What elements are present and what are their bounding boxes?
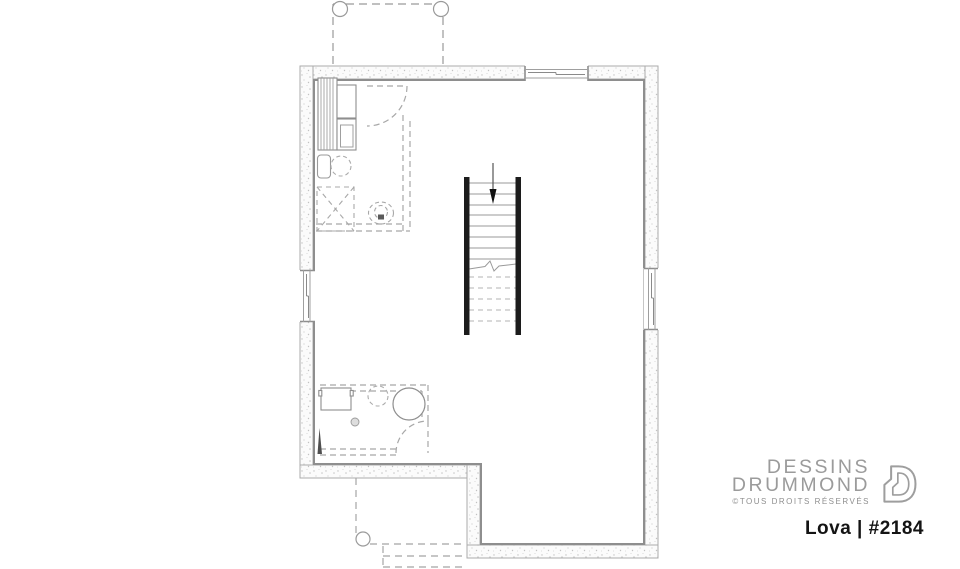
logo-rights-text: ©TOUS DROITS RÉSERVÉS (732, 498, 870, 506)
bathroom-door-swing (367, 86, 407, 126)
porch-post-right (434, 2, 449, 17)
staircase (464, 163, 521, 335)
designer-logo: DESSINS DRUMMOND ©TOUS DROITS RÉSERVÉS (732, 458, 918, 509)
washer (319, 388, 353, 410)
left-wall-window (300, 270, 316, 322)
mechanical-shelving (318, 78, 337, 150)
toilet-dashed (369, 202, 394, 224)
floor-drain (351, 418, 359, 426)
rear-post (356, 532, 370, 546)
wall-top (300, 66, 658, 79)
shower-dashed (317, 187, 354, 231)
rear-steps-dashed (356, 478, 466, 567)
drummond-d-logo-icon (876, 459, 918, 509)
laundry-tub (318, 155, 331, 178)
designer-logo-text: DESSINS DRUMMOND ©TOUS DROITS RÉSERVÉS (732, 458, 870, 506)
stair-wall-right (516, 177, 522, 335)
floor-plan-screenshot: DESSINS DRUMMOND ©TOUS DROITS RÉSERVÉS L… (0, 0, 960, 569)
future-appliance-circle (368, 386, 388, 406)
toilet-flange (378, 215, 384, 220)
water-heater (393, 388, 425, 420)
equipment-box-inner (341, 125, 354, 147)
logo-line-2: DRUMMOND (732, 476, 870, 494)
stair-break-line (469, 261, 516, 271)
plan-name-number: Lova | #2184 (805, 518, 924, 540)
porch-post-left (333, 2, 348, 17)
stair-down-arrow-icon (490, 189, 497, 204)
top-porch-dashed (333, 4, 443, 66)
top-wall-window (525, 65, 588, 81)
furnace-box (337, 85, 356, 118)
wall-bottom-main (300, 465, 480, 478)
laundry-door-swing (396, 421, 428, 453)
wall-extension-bottom (467, 545, 658, 558)
future-fixture-circle (331, 156, 351, 176)
wall-extension-left (467, 465, 480, 558)
stair-wall-left (464, 177, 470, 335)
right-wall-window (644, 268, 660, 330)
column-wedge (318, 428, 323, 454)
